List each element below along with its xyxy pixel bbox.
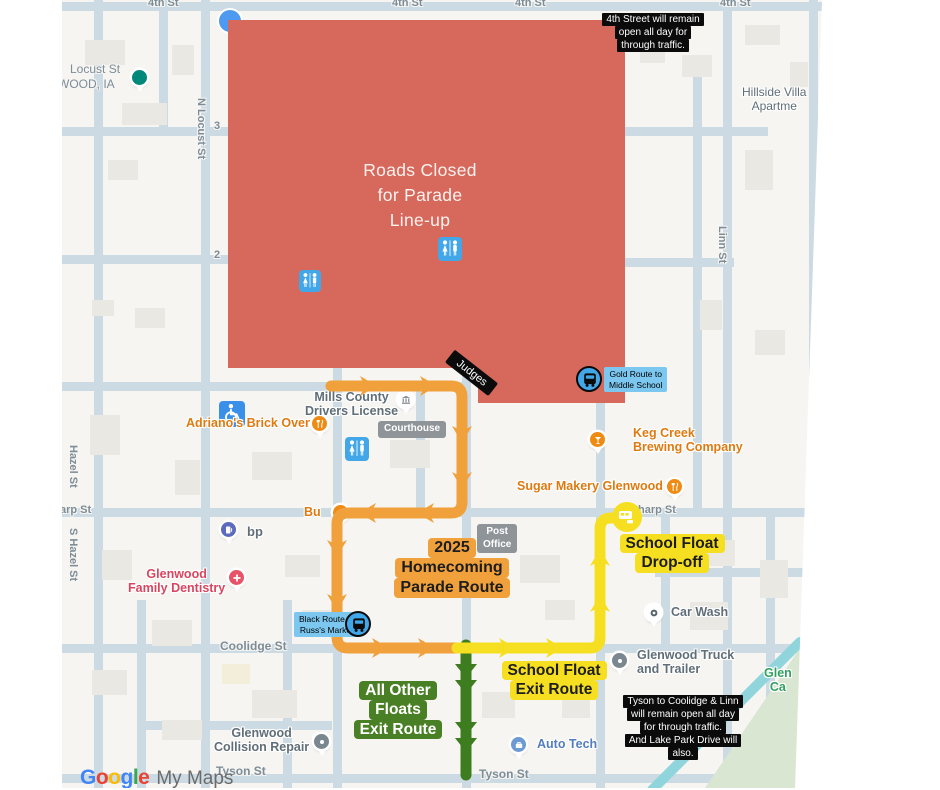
black-route-bus-icon[interactable] [345, 611, 371, 637]
note-tyson-coolidge-linn: Tyson to Coolidge & Linn will remain ope… [615, 695, 751, 760]
google-my-maps-watermark[interactable]: GoogleMy Maps [80, 766, 233, 790]
google-my-maps-canvas: { "colors": { "parade_orange": "#F0A13C"… [0, 0, 940, 788]
all-other-floats-exit-route-label[interactable]: All Other Floats Exit Route [348, 681, 448, 739]
map-viewport[interactable]: 4th St 4th St 4th St 4th St Locust St WO… [0, 0, 940, 788]
gold-route-bus-icon[interactable] [576, 366, 602, 392]
parade-route-label[interactable]: 2025 Homecoming Parade Route [392, 538, 512, 598]
google-logo: Google [80, 766, 149, 789]
school-float-drop-off-label[interactable]: School Float Drop-off [613, 534, 731, 573]
gold-route-badge[interactable]: Gold Route toMiddle School [604, 367, 667, 392]
school-float-exit-route-label[interactable]: School Float Exit Route [496, 661, 612, 700]
my-maps-label: My Maps [156, 768, 233, 789]
note-4th-street: 4th Street will remain open all day for … [601, 13, 705, 52]
parade-routes-layer[interactable] [0, 0, 940, 788]
